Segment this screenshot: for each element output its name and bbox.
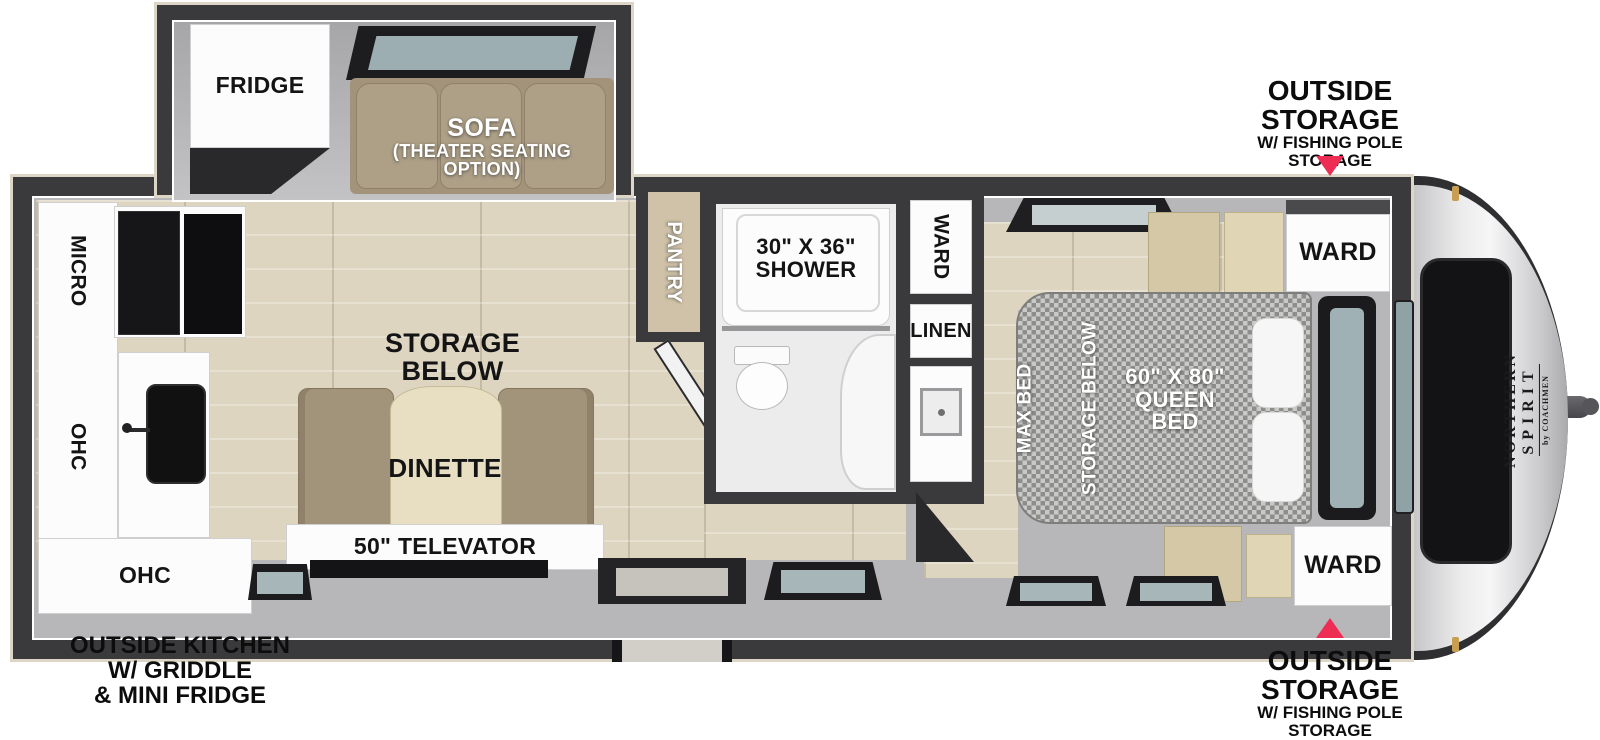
fridge: FRIDGE — [190, 24, 330, 148]
linen-label: LINEN — [910, 321, 972, 342]
brand-logo-text: NORTHERN SPIRIT by COACHMEN — [1502, 352, 1550, 468]
vanity-curve — [840, 334, 896, 490]
pillow — [1252, 318, 1304, 408]
storage-below-label: STORAGE BELOW — [330, 330, 575, 386]
entry-step — [612, 640, 732, 662]
hall-floor — [704, 498, 906, 560]
faucet-knob — [122, 423, 132, 433]
window-glass — [1020, 583, 1092, 601]
window — [1006, 576, 1106, 606]
callout-line: OUTSIDE — [1180, 646, 1480, 675]
window-glass — [781, 570, 866, 593]
brand-underline — [1539, 364, 1540, 457]
maxbed-line1: MAX BED — [1014, 321, 1036, 495]
headboard-cabinet — [1148, 212, 1220, 296]
bath-sink-drain — [938, 409, 945, 416]
callout-outside-storage-bottom: OUTSIDE STORAGE W/ FISHING POLE STORAGE — [1180, 646, 1480, 740]
hitch-coupler — [1582, 398, 1599, 415]
brand-line1: NORTHERN — [1502, 352, 1520, 468]
sofa-label-title: SOFA — [350, 116, 614, 142]
shower-door-track — [722, 326, 890, 331]
linen-closet: LINEN — [910, 304, 972, 358]
ohc-wall-cabinet: OHC — [40, 388, 116, 506]
callout-line: W/ FISHING POLE — [1180, 134, 1480, 152]
callout-line: W/ FISHING POLE — [1180, 704, 1480, 722]
maxbed-storage-label-wrap: MAX BED STORAGE BELOW — [1018, 310, 1098, 506]
front-panel-window — [1420, 258, 1512, 564]
televator-label: 50" TELEVATOR — [354, 535, 536, 559]
dinette-label: DINETTE — [388, 455, 501, 482]
ward-front-top: WARD — [1286, 214, 1390, 292]
bed-line3: BED — [1100, 411, 1250, 434]
pantry: PANTRY — [648, 192, 700, 332]
brand-line2: SPIRIT — [1520, 352, 1538, 468]
shower-size: 30" X 36" — [716, 236, 896, 259]
bedroom-skylight-glass — [1032, 205, 1156, 225]
bed-line2: QUEEN — [1100, 389, 1250, 412]
kitchen-counter-bottom: OHC — [38, 538, 252, 614]
window-glass — [257, 572, 303, 594]
shower-label: 30" X 36" SHOWER — [716, 236, 896, 281]
storage-below-line1: STORAGE — [330, 330, 575, 358]
maxbed-line2: STORAGE BELOW — [1080, 321, 1102, 495]
kitchen-sink — [146, 384, 206, 484]
callout-line: & MINI FRIDGE — [20, 684, 340, 709]
sofa-label-option2: OPTION) — [350, 160, 614, 179]
ohc-wall-label: OHC — [67, 423, 89, 471]
floorplan-canvas: FRIDGE SOFA (THEATER SEATING OPTION) OHC… — [0, 0, 1600, 740]
window-glass — [1140, 583, 1212, 601]
front-window-tall-glass — [1330, 308, 1364, 508]
storage-below-line2: BELOW — [330, 358, 575, 386]
callout-line: OUTSIDE KITCHEN — [20, 634, 340, 659]
window — [764, 562, 882, 600]
window — [248, 564, 312, 600]
pantry-label: PANTRY — [664, 221, 685, 303]
bed-size: 60" X 80" — [1100, 366, 1250, 389]
brand-logo: NORTHERN SPIRIT by COACHMEN — [1504, 300, 1548, 520]
entry-door-mat — [616, 568, 728, 596]
callout-line: STORAGE — [1180, 105, 1480, 134]
micro-cabinet: MICRO — [40, 212, 116, 330]
sofa-window-glass — [368, 36, 578, 70]
oven — [184, 214, 242, 334]
callout-line: STORAGE — [1180, 675, 1480, 704]
pillow — [1252, 412, 1304, 502]
queen-bed-label: 60" X 80" QUEEN BED — [1100, 366, 1250, 434]
callout-line: OUTSIDE — [1180, 76, 1480, 105]
toilet-bowl — [736, 362, 788, 410]
callout-line: W/ GRIDDLE — [20, 659, 340, 684]
arrow-down-icon — [1316, 156, 1344, 176]
ward-top-cabinet-top — [1286, 200, 1390, 214]
ward-front-bottom-label: WARD — [1304, 553, 1382, 579]
sofa-label-option1: (THEATER SEATING — [350, 142, 614, 161]
callout-outside-kitchen: OUTSIDE KITCHEN W/ GRIDDLE & MINI FRIDGE — [20, 634, 340, 709]
footboard-cabinet — [1246, 534, 1292, 598]
tv-screen — [310, 560, 548, 578]
dinette-label-wrap: DINETTE — [300, 452, 590, 484]
marker-light-top — [1452, 186, 1459, 201]
cooktop — [118, 211, 180, 335]
callout-line: STORAGE — [1180, 722, 1480, 740]
fridge-label: FRIDGE — [216, 74, 305, 98]
ward-entry: WARD — [910, 200, 972, 294]
ward-front-bottom: WARD — [1294, 526, 1392, 606]
window — [1126, 576, 1226, 606]
sofa-label: SOFA (THEATER SEATING OPTION) — [350, 116, 614, 179]
headboard-cabinet — [1224, 212, 1284, 296]
front-wall-glass-sliver — [1394, 300, 1414, 514]
brand-byline: by COACHMEN — [1541, 352, 1550, 468]
micro-label: MICRO — [67, 235, 89, 307]
ward-entry-label: WARD — [930, 214, 952, 279]
ohc-base-label: OHC — [119, 564, 171, 588]
ward-front-top-label: WARD — [1299, 240, 1377, 266]
shower-name: SHOWER — [716, 259, 896, 282]
arrow-up-icon — [1316, 618, 1344, 638]
